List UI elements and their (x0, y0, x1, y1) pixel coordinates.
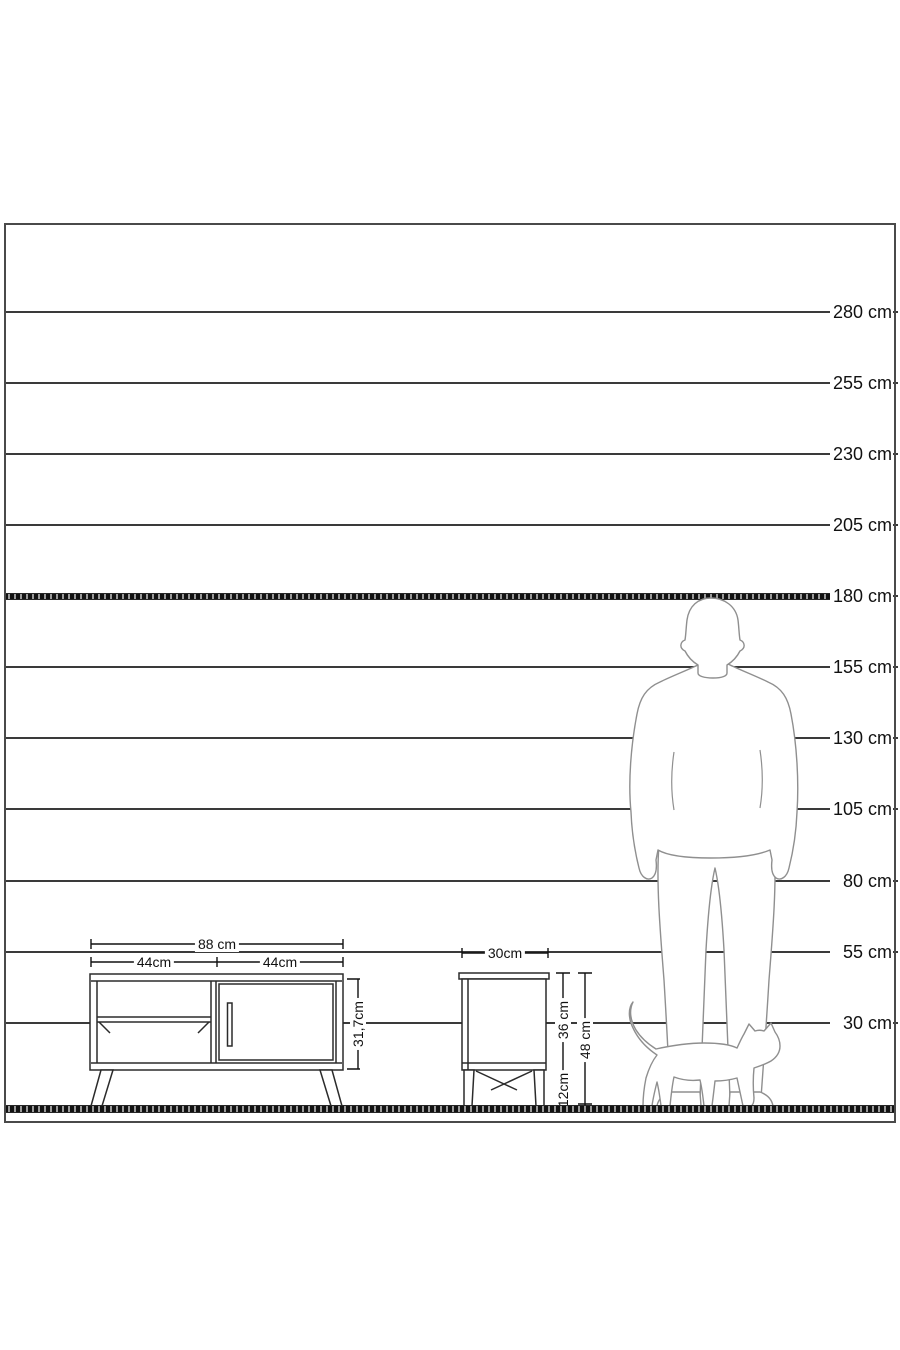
ground-line (4, 1105, 896, 1113)
nightstand-body-height-label: 36 cm (555, 998, 571, 1042)
nightstand-top-board (459, 973, 549, 979)
tv-stand-left-leg (91, 1070, 113, 1106)
tv-stand-width-label: 88 cm (195, 936, 239, 952)
nightstand-left-leg (464, 1070, 474, 1106)
tv-stand-drawing (90, 974, 343, 1106)
tv-stand-left-width-label: 44cm (134, 954, 174, 970)
tv-stand-height-label: 31,7cm (350, 998, 366, 1050)
nightstand-leg-braces (476, 1071, 532, 1090)
nightstand-total-height-label: 48 cm (577, 1018, 593, 1062)
nightstand-drawing (459, 973, 549, 1106)
furniture-layer (0, 0, 900, 1350)
nightstand-width-label: 30cm (485, 945, 525, 961)
size-scale-diagram: 280 cm255 cm230 cm205 cm180 cm155 cm130 … (0, 0, 900, 1350)
tv-stand-right-width-label: 44cm (260, 954, 300, 970)
nightstand-body (462, 979, 546, 1070)
dim-line-width-44-44 (91, 957, 343, 967)
tv-stand-right-leg (320, 1070, 342, 1106)
nightstand-right-leg (534, 1070, 544, 1106)
tv-stand-door-handle (228, 1003, 233, 1046)
